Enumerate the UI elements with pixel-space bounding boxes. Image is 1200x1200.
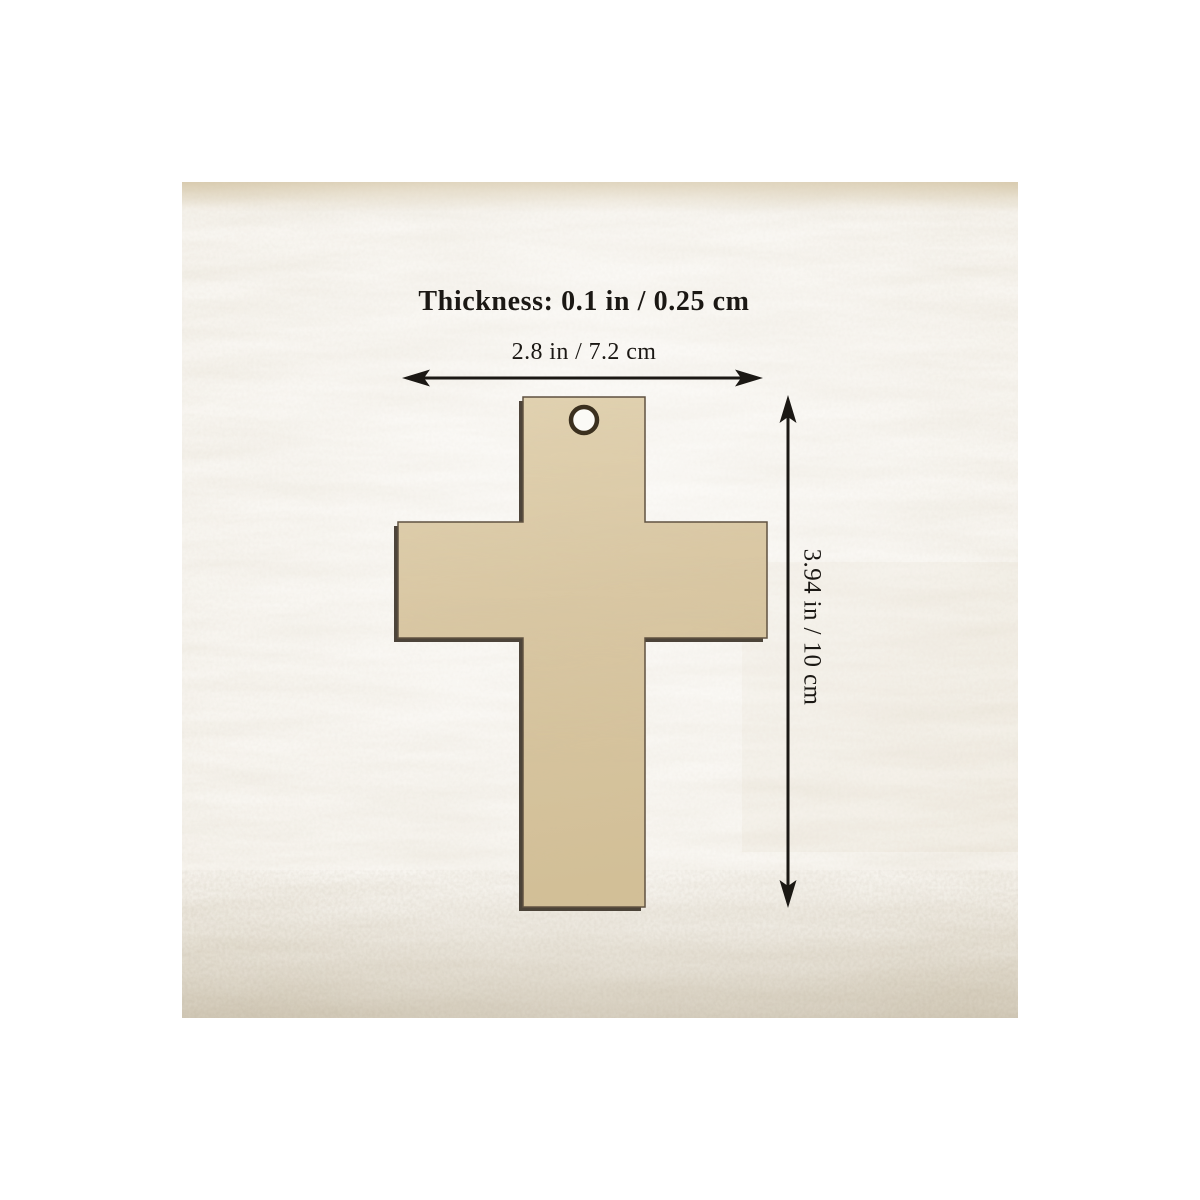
- width-label: 2.8 in / 7.2 cm: [512, 340, 657, 364]
- product-image: Thickness: 0.1 in / 0.25 cm 2.8 in / 7.2…: [0, 0, 1200, 1200]
- hanging-hole: [571, 407, 597, 433]
- height-label: 3.94 in / 10 cm: [800, 549, 825, 706]
- thickness-label: Thickness: 0.1 in / 0.25 cm: [418, 288, 749, 316]
- wood-background-photo: Thickness: 0.1 in / 0.25 cm 2.8 in / 7.2…: [182, 182, 1018, 1018]
